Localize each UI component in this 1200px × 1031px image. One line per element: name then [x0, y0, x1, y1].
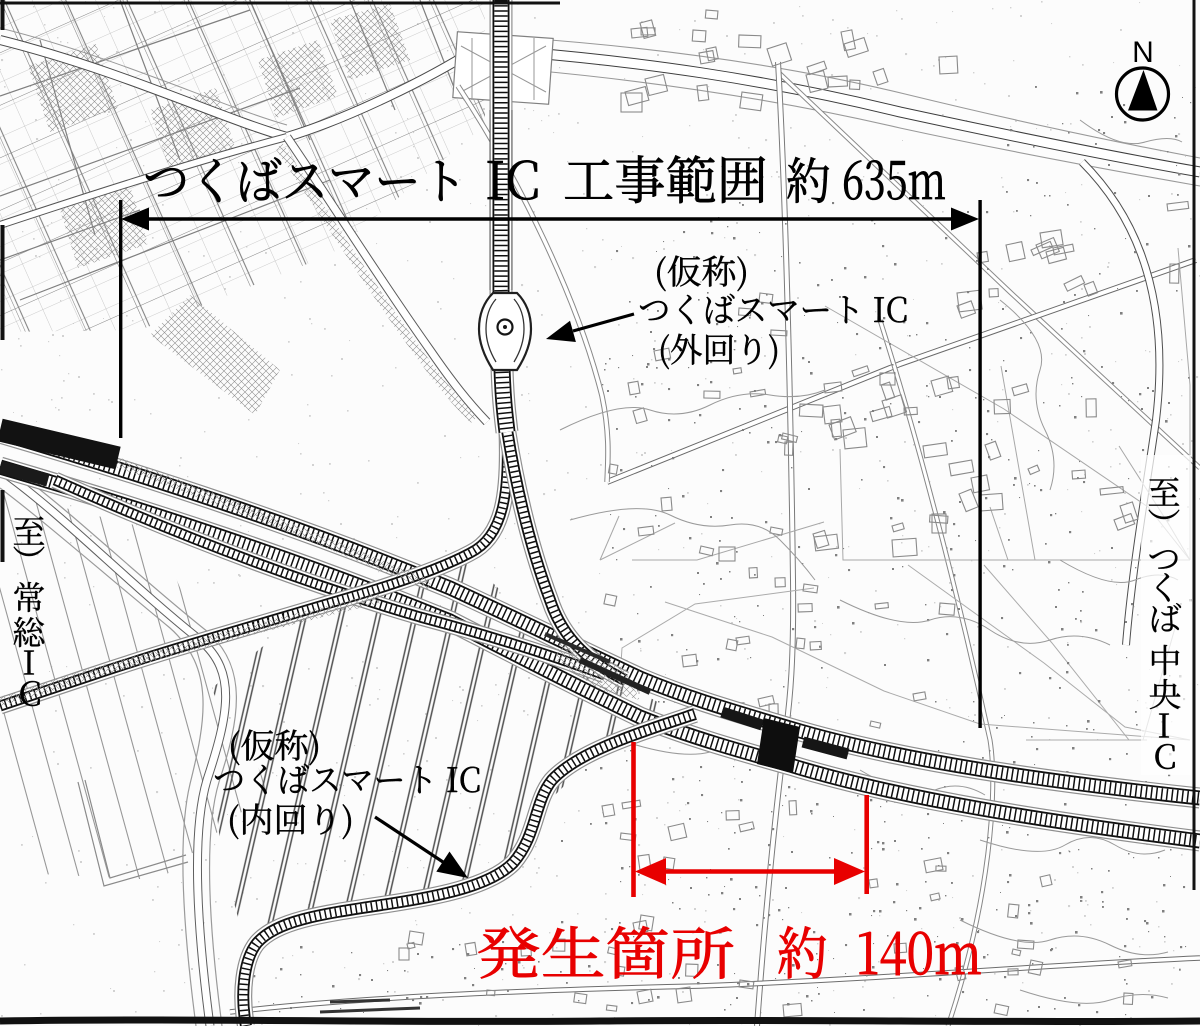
- svg-text:N: N: [1132, 36, 1154, 69]
